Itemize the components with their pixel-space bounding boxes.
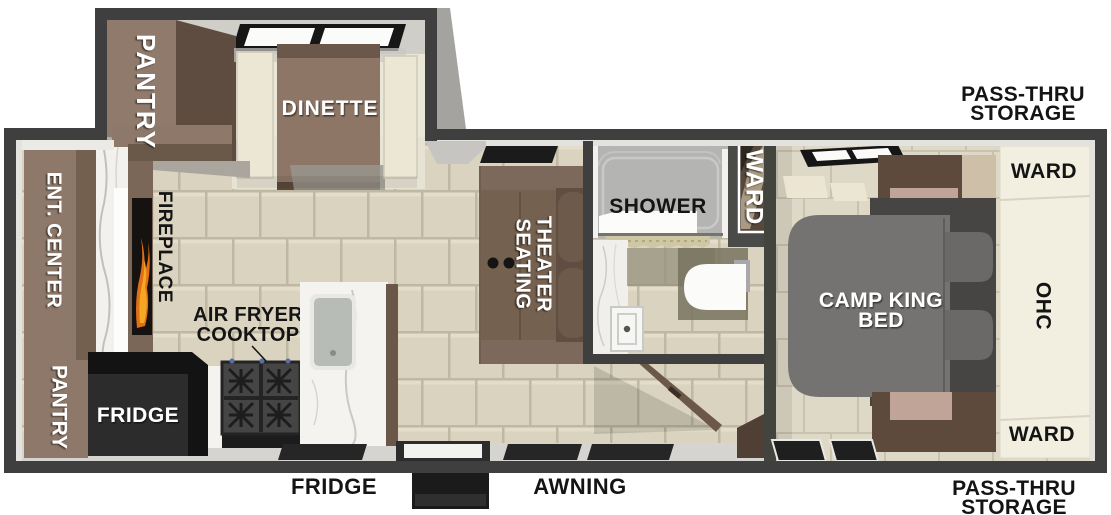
svg-text:ENT. CENTER: ENT. CENTER: [43, 172, 65, 309]
svg-text:STORAGE: STORAGE: [970, 102, 1076, 125]
svg-text:BED: BED: [858, 309, 904, 332]
svg-text:PANTRY: PANTRY: [47, 365, 70, 449]
svg-text:THEATER: THEATER: [533, 216, 555, 313]
svg-text:SEATING: SEATING: [512, 219, 534, 310]
svg-text:STORAGE: STORAGE: [961, 496, 1067, 515]
svg-text:SHOWER: SHOWER: [609, 195, 707, 218]
svg-text:WARD: WARD: [1011, 160, 1077, 183]
svg-text:AIR FRYER: AIR FRYER: [193, 304, 303, 326]
svg-text:WARD: WARD: [741, 149, 768, 224]
svg-text:PANTRY: PANTRY: [131, 34, 161, 150]
svg-text:FRIDGE: FRIDGE: [97, 404, 179, 427]
svg-text:AWNING: AWNING: [533, 474, 626, 499]
svg-text:FRIDGE: FRIDGE: [291, 474, 377, 499]
svg-text:DINETTE: DINETTE: [282, 97, 379, 120]
svg-text:FIREPLACE: FIREPLACE: [154, 191, 175, 303]
svg-text:OHC: OHC: [1031, 282, 1054, 330]
svg-text:WARD: WARD: [1009, 423, 1075, 446]
svg-text:COOKTOP: COOKTOP: [197, 324, 300, 346]
